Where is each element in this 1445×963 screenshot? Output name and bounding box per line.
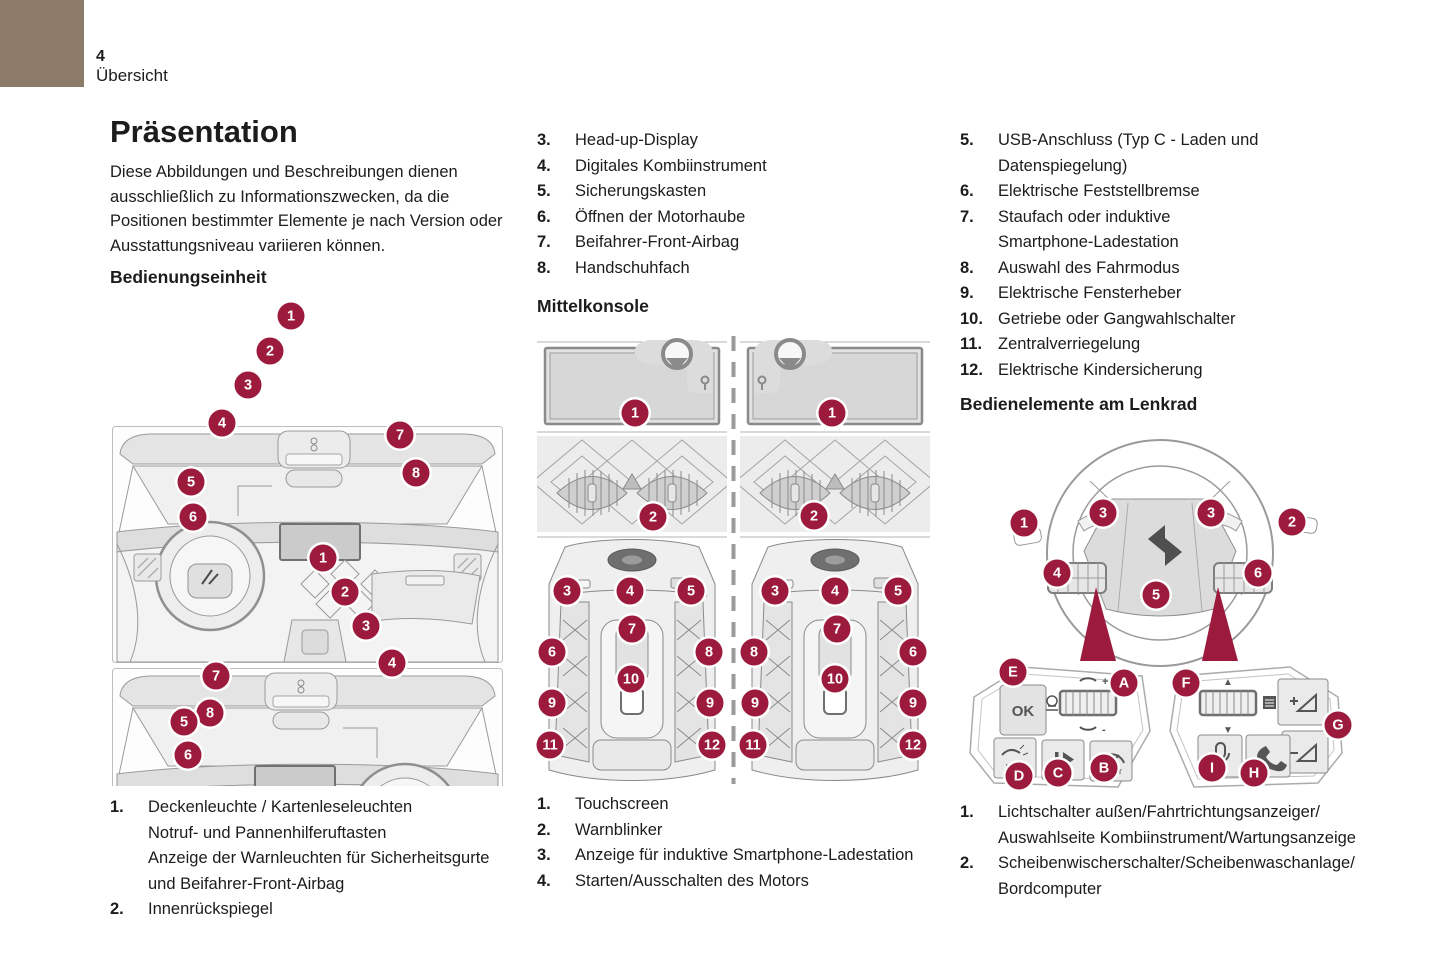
list-item-number: 7.: [537, 230, 575, 256]
callout-8: 8: [197, 700, 224, 727]
list-item-text: Getriebe oder Gangwahlschalter: [998, 307, 1236, 333]
list-item-number: 7.: [960, 205, 998, 231]
list-item-text: Warnblinker: [575, 818, 662, 844]
up-arrow-icon: ▲: [1223, 677, 1233, 688]
callout-2: 2: [1279, 509, 1306, 536]
callout-C: C: [1045, 760, 1072, 787]
list-item-number: 6.: [537, 205, 575, 231]
center-console-drawing: [537, 332, 930, 787]
list-item-text: Elektrische Feststellbremse: [998, 179, 1200, 205]
callout-2: 2: [801, 503, 828, 530]
callout-1: 1: [622, 400, 649, 427]
callout-4: 4: [822, 578, 849, 605]
list-item: 3.Anzeige für induktive Smartphone-Lades…: [537, 843, 957, 869]
callout-3: 3: [353, 613, 380, 640]
svg-text:-: -: [1102, 724, 1106, 736]
list-item-text: Lichtschalter außen/Fahrtrichtungsanzeig…: [998, 800, 1356, 851]
list-item-text: Digitales Kombiinstrument: [575, 154, 767, 180]
list-item: 12.Elektrische Kindersicherung: [960, 358, 1445, 384]
page-title: Präsentation: [110, 115, 298, 149]
list-item: 1.Touchscreen: [537, 792, 957, 818]
volume-up-button: [1278, 679, 1328, 725]
callout-5: 5: [885, 578, 912, 605]
list-item: 2.Innenrückspiegel: [110, 897, 550, 923]
list-item: 11.Zentralverriegelung: [960, 332, 1445, 358]
manual-page: 4 Übersicht Präsentation Diese Abbildung…: [0, 0, 1445, 963]
steering-wheel-drawing: OK + -: [960, 435, 1440, 793]
callout-9: 9: [742, 690, 769, 717]
callout-A: A: [1111, 670, 1138, 697]
list-item-number: 4.: [537, 154, 575, 180]
list-item-text: Handschuhfach: [575, 256, 690, 282]
list-item-number: 1.: [960, 800, 998, 826]
list-item-text: Scheibenwischerschalter/Scheibenwaschanl…: [998, 851, 1355, 902]
callout-12: 12: [699, 732, 726, 759]
callout-8: 8: [741, 639, 768, 666]
callout-5: 5: [171, 709, 198, 736]
list-icon: [1263, 696, 1276, 709]
list-item-text: USB-Anschluss (Typ C - Laden undDatenspi…: [998, 128, 1258, 179]
list-item-text: Innenrückspiegel: [148, 897, 273, 923]
intro-text: Diese Abbildungen und Beschreibungen die…: [110, 160, 510, 258]
callout-6: 6: [1245, 560, 1272, 587]
callout-2: 2: [332, 579, 359, 606]
callout-3: 3: [554, 578, 581, 605]
callout-11: 11: [537, 732, 564, 759]
center-console-diagram: 11223457681099111234578610991112: [537, 332, 930, 787]
svg-text:+: +: [1102, 676, 1108, 688]
legend-mittelkonsole: 1.Touchscreen2.Warnblinker3.Anzeige für …: [537, 792, 957, 894]
list-item-text: Sicherungskasten: [575, 179, 706, 205]
list-item: 8.Auswahl des Fahrmodus: [960, 256, 1445, 282]
list-item-number: 12.: [960, 358, 998, 384]
callout-4: 4: [1044, 560, 1071, 587]
callout-I: I: [1199, 755, 1226, 782]
callout-5: 5: [1143, 582, 1170, 609]
callout-3: 3: [1090, 500, 1117, 527]
legend-lenkrad: 1.Lichtschalter außen/Fahrtrichtungsanze…: [960, 800, 1445, 902]
list-item: 4.Starten/Ausschalten des Motors: [537, 869, 957, 895]
list-item-number: 2.: [960, 851, 998, 877]
callout-6: 6: [175, 742, 202, 769]
callout-9: 9: [900, 690, 927, 717]
page-number: 4: [96, 48, 168, 66]
list-item-text: Deckenleuchte / KartenleseleuchtenNotruf…: [148, 795, 490, 897]
callout-D: D: [1006, 763, 1033, 790]
list-item-number: 1.: [110, 795, 148, 821]
callout-F: F: [1173, 670, 1200, 697]
list-dashboard-items: 3.Head-up-Display4.Digitales Kombiinstru…: [537, 128, 937, 281]
callout-H: H: [1241, 760, 1268, 787]
callout-7: 7: [387, 422, 414, 449]
callout-2: 2: [640, 504, 667, 531]
steering-wheel-diagram: OK + -: [960, 435, 1440, 793]
list-item: 5.USB-Anschluss (Typ C - Laden undDatens…: [960, 128, 1445, 179]
callout-3: 3: [1198, 500, 1225, 527]
callout-12: 12: [900, 732, 927, 759]
callout-9: 9: [697, 690, 724, 717]
callout-4: 4: [209, 410, 236, 437]
list-item: 1.Deckenleuchte / KartenleseleuchtenNotr…: [110, 795, 550, 897]
callout-10: 10: [822, 666, 849, 693]
list-item-number: 2.: [110, 897, 148, 923]
list-item-text: Elektrische Kindersicherung: [998, 358, 1203, 384]
list-item-number: 4.: [537, 869, 575, 895]
list-item: 6.Öffnen der Motorhaube: [537, 205, 937, 231]
list-item-text: Beifahrer-Front-Airbag: [575, 230, 739, 256]
dashboard-drawing: [110, 303, 505, 786]
list-item-number: 5.: [960, 128, 998, 154]
heading-lenkrad: Bedienelemente am Lenkrad: [960, 394, 1197, 414]
callout-7: 7: [824, 616, 851, 643]
list-item-text: Elektrische Fensterheber: [998, 281, 1181, 307]
list-item-number: 8.: [960, 256, 998, 282]
callout-4: 4: [379, 650, 406, 677]
list-item-number: 9.: [960, 281, 998, 307]
list-item-number: 5.: [537, 179, 575, 205]
callout-4: 4: [617, 578, 644, 605]
list-item: 7.Staufach oder induktiveSmartphone-Lade…: [960, 205, 1445, 256]
list-item-number: 6.: [960, 179, 998, 205]
callout-6: 6: [900, 639, 927, 666]
callout-G: G: [1325, 712, 1352, 739]
callout-8: 8: [696, 639, 723, 666]
list-item: 5.Sicherungskasten: [537, 179, 937, 205]
list-item: 7.Beifahrer-Front-Airbag: [537, 230, 937, 256]
callout-6: 6: [180, 504, 207, 531]
list-item-number: 2.: [537, 818, 575, 844]
list-item-number: 10.: [960, 307, 998, 333]
list-item-number: 8.: [537, 256, 575, 282]
callout-6: 6: [539, 639, 566, 666]
dashboard-diagram: 1234785612347856: [110, 303, 505, 786]
list-item: 1.Lichtschalter außen/Fahrtrichtungsanze…: [960, 800, 1445, 851]
heading-mittelkonsole: Mittelkonsole: [537, 296, 649, 316]
callout-11: 11: [740, 732, 767, 759]
thumbwheel-icon-right: [1200, 691, 1256, 715]
callout-9: 9: [539, 690, 566, 717]
list-item: 10.Getriebe oder Gangwahlschalter: [960, 307, 1445, 333]
callout-1: 1: [819, 400, 846, 427]
list-item-number: 11.: [960, 332, 998, 358]
list-item: 8.Handschuhfach: [537, 256, 937, 282]
callout-5: 5: [678, 578, 705, 605]
list-item-text: Starten/Ausschalten des Motors: [575, 869, 809, 895]
callout-7: 7: [203, 663, 230, 690]
list-item-text: Touchscreen: [575, 792, 669, 818]
legend-bedienungseinheit: 1.Deckenleuchte / KartenleseleuchtenNotr…: [110, 795, 550, 923]
down-arrow-icon: ▼: [1223, 725, 1233, 736]
list-item-number: 1.: [537, 792, 575, 818]
list-item-text: Staufach oder induktiveSmartphone-Ladest…: [998, 205, 1179, 256]
callout-5: 5: [178, 469, 205, 496]
list-item-number: 3.: [537, 128, 575, 154]
callout-3: 3: [235, 372, 262, 399]
list-item-text: Head-up-Display: [575, 128, 698, 154]
svg-text:OK: OK: [1012, 703, 1035, 720]
list-item-text: Anzeige für induktive Smartphone-Ladesta…: [575, 843, 913, 869]
list-item: 6.Elektrische Feststellbremse: [960, 179, 1445, 205]
callout-8: 8: [403, 460, 430, 487]
callout-10: 10: [618, 666, 645, 693]
list-item-text: Öffnen der Motorhaube: [575, 205, 745, 231]
list-item: 3.Head-up-Display: [537, 128, 937, 154]
callout-1: 1: [310, 545, 337, 572]
list-item: 2.Scheibenwischerschalter/Scheibenwascha…: [960, 851, 1445, 902]
corner-color-block: [0, 0, 84, 87]
callout-7: 7: [619, 616, 646, 643]
callout-2: 2: [257, 338, 284, 365]
thumbwheel-icon: [1060, 691, 1116, 715]
callout-B: B: [1091, 755, 1118, 782]
list-item: 4.Digitales Kombiinstrument: [537, 154, 937, 180]
section-title: Übersicht: [96, 66, 168, 86]
heading-bedienungseinheit: Bedienungseinheit: [110, 267, 267, 287]
callout-1: 1: [278, 303, 305, 330]
list-item-number: 3.: [537, 843, 575, 869]
list-item: 9.Elektrische Fensterheber: [960, 281, 1445, 307]
list-item-text: Auswahl des Fahrmodus: [998, 256, 1180, 282]
list-console-items: 5.USB-Anschluss (Typ C - Laden undDatens…: [960, 128, 1445, 383]
callout-3: 3: [762, 578, 789, 605]
callout-1: 1: [1011, 510, 1038, 537]
callout-E: E: [1000, 659, 1027, 686]
list-item-text: Zentralverriegelung: [998, 332, 1140, 358]
list-item: 2.Warnblinker: [537, 818, 957, 844]
